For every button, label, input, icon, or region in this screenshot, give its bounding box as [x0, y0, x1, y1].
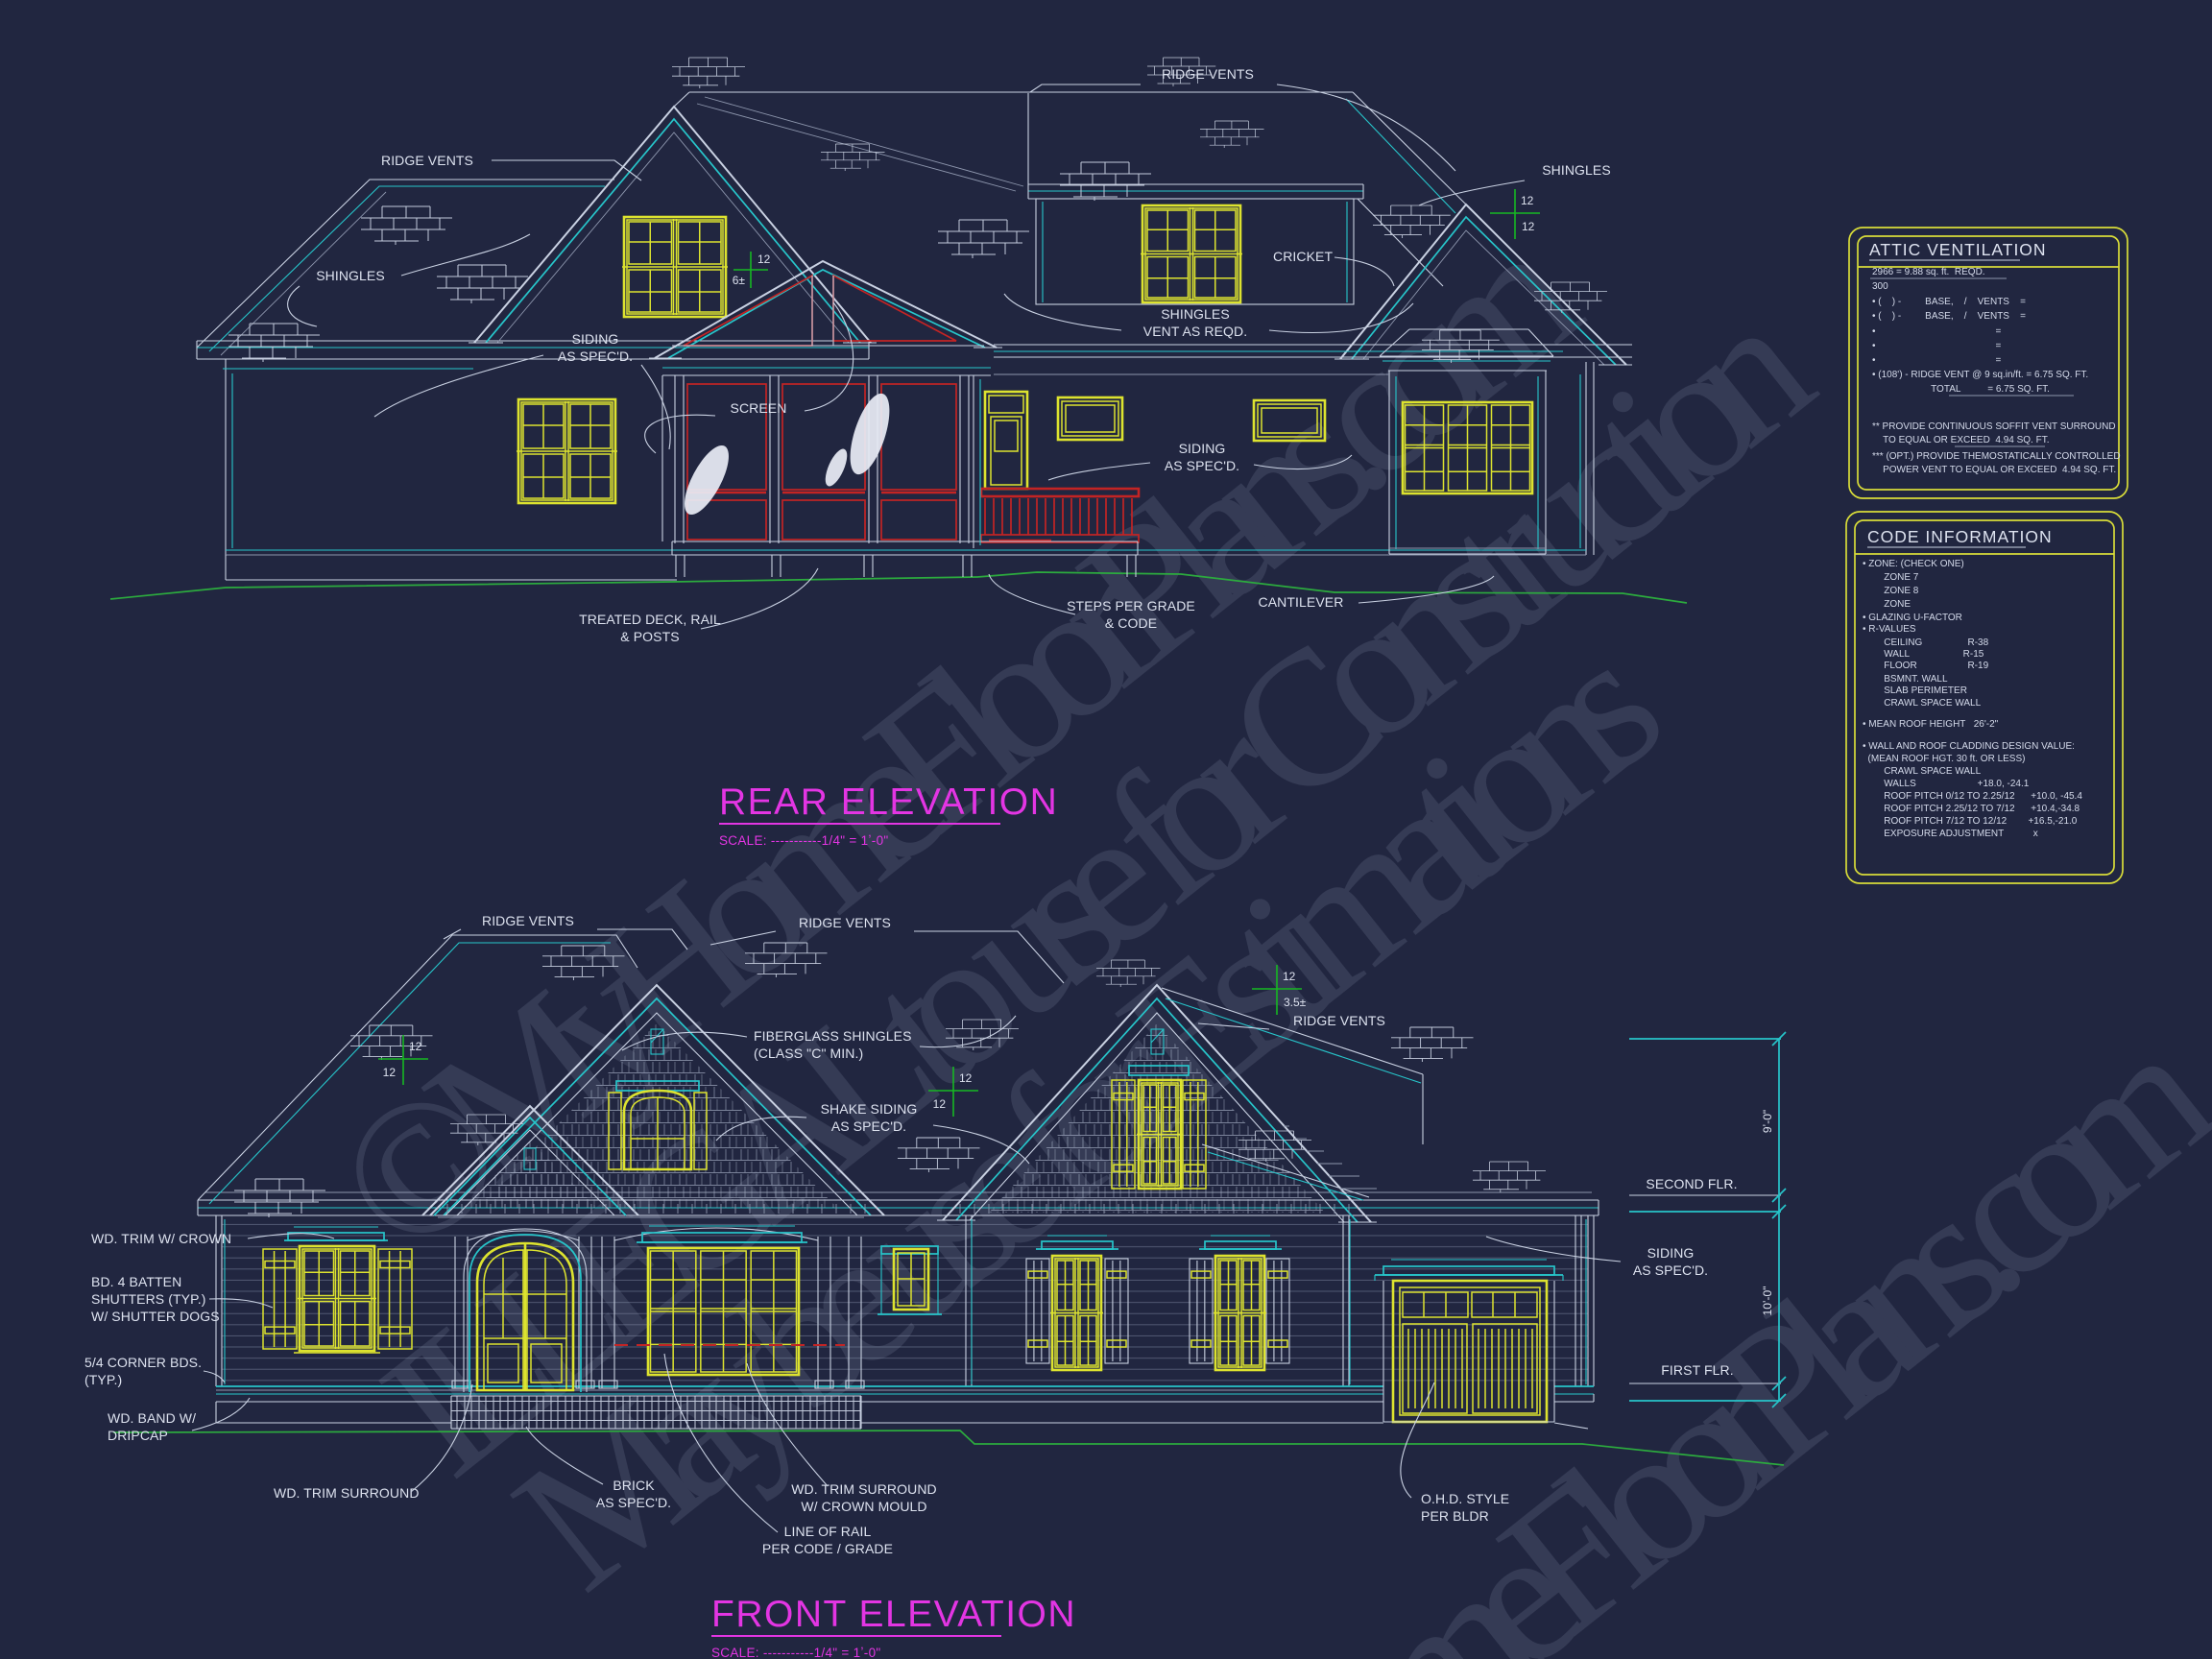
svg-text:AS SPEC'D.: AS SPEC'D. [1633, 1262, 1708, 1278]
svg-text:FIBERGLASS SHINGLES: FIBERGLASS SHINGLES [754, 1028, 912, 1044]
svg-text:12: 12 [1283, 970, 1296, 983]
svg-text:AS SPEC'D.: AS SPEC'D. [1165, 458, 1239, 473]
svg-text:RIDGE VENTS: RIDGE VENTS [482, 913, 574, 928]
svg-text:12: 12 [933, 1097, 947, 1111]
svg-text:*** (OPT.) PROVIDE THEMOSTATIC: *** (OPT.) PROVIDE THEMOSTATICALLY CONTR… [1872, 451, 2121, 462]
svg-text:CRICKET: CRICKET [1273, 249, 1333, 264]
svg-text:(CLASS "C" MIN.): (CLASS "C" MIN.) [754, 1046, 863, 1061]
svg-text:AS SPEC'D.: AS SPEC'D. [558, 349, 633, 364]
svg-text:ROOF PITCH 7/12 TO 12/12: ROOF PITCH 7/12 TO 12/12 +16.5,-21.0 [1863, 816, 2078, 827]
svg-text:9ʼ-0": 9ʼ-0" [1761, 1110, 1774, 1133]
svg-text:SHUTTERS (TYP.): SHUTTERS (TYP.) [91, 1291, 205, 1307]
svg-text:SLAB PERIMETER: SLAB PERIMETER [1863, 685, 1967, 696]
svg-text:WALL R-15: WALL R-15 [1863, 649, 1984, 660]
svg-text:•: • = [1872, 326, 2002, 337]
svg-text:CODE INFORMATION: CODE INFORMATION [1867, 527, 2053, 546]
svg-text:RIDGE VENTS: RIDGE VENTS [381, 153, 473, 168]
svg-text:POWER VENT TO EQUAL OR EXCEED: POWER VENT TO EQUAL OR EXCEED 4.94 SQ. F… [1872, 465, 2116, 475]
svg-text:SHINGLES: SHINGLES [1161, 306, 1230, 322]
svg-text:12: 12 [757, 252, 771, 266]
svg-text:•: • = [1872, 341, 2002, 351]
svg-text:300: 300 [1872, 281, 1888, 292]
svg-text:BRICK: BRICK [613, 1478, 655, 1493]
svg-text:BD. 4 BATTEN: BD. 4 BATTEN [91, 1274, 181, 1289]
svg-text:SCREEN: SCREEN [731, 400, 787, 416]
svg-text:12: 12 [409, 1040, 422, 1053]
svg-text:& POSTS: & POSTS [620, 629, 679, 644]
svg-text:W/ SHUTTER DOGS: W/ SHUTTER DOGS [91, 1309, 220, 1324]
svg-text:ROOF PITCH 0/12 TO 2.25/12: ROOF PITCH 0/12 TO 2.25/12 +10.0, -45.4 [1863, 791, 2082, 802]
svg-text:ATTIC VENTILATION: ATTIC VENTILATION [1869, 240, 2047, 259]
svg-text:(MEAN ROOF HGT. 30 ft. OR LESS: (MEAN ROOF HGT. 30 ft. OR LESS) [1863, 754, 2025, 764]
svg-text:5/4 CORNER BDS.: 5/4 CORNER BDS. [84, 1355, 202, 1370]
svg-text:CANTILEVER: CANTILEVER [1259, 594, 1344, 610]
svg-text:ZONE 8: ZONE 8 [1863, 586, 1919, 596]
svg-text:BSMNT. WALL: BSMNT. WALL [1863, 674, 1948, 685]
svg-text:TREATED DECK, RAIL: TREATED DECK, RAIL [579, 612, 721, 627]
svg-text:STEPS PER GRADE: STEPS PER GRADE [1067, 598, 1195, 613]
svg-text:** PROVIDE CONTINUOUS SOFFIT V: ** PROVIDE CONTINUOUS SOFFIT VENT SURROU… [1872, 421, 2116, 432]
svg-text:12: 12 [959, 1071, 973, 1085]
svg-text:WD. TRIM SURROUND: WD. TRIM SURROUND [791, 1481, 937, 1497]
svg-text:FLOOR R-19: FLOOR R-19 [1863, 661, 1989, 671]
svg-text:ZONE: ZONE [1863, 599, 1911, 610]
svg-text:RIDGE VENTS: RIDGE VENTS [1162, 66, 1254, 82]
svg-text:EXPOSURE ADJUSTMENT: EXPOSURE ADJUSTMENT x [1863, 829, 2038, 839]
svg-text:• MEAN ROOF HEIGHT 26'-2": • MEAN ROOF HEIGHT 26'-2" [1863, 719, 1999, 730]
svg-text:WALLS +1: WALLS +18.0, -24.1 [1863, 779, 2030, 789]
svg-text:SCALE: -----------1/4" = 1ʼ-0": SCALE: -----------1/4" = 1ʼ-0" [719, 833, 888, 848]
svg-text:SIDING: SIDING [1647, 1245, 1695, 1261]
svg-text:PER CODE / GRADE: PER CODE / GRADE [762, 1541, 893, 1556]
svg-text:PER BLDR: PER BLDR [1421, 1508, 1489, 1524]
svg-text:SHINGLES: SHINGLES [316, 268, 385, 283]
svg-text:FRONT ELEVATION: FRONT ELEVATION [711, 1594, 1076, 1635]
svg-text:AS SPEC'D.: AS SPEC'D. [596, 1495, 671, 1510]
svg-text:REAR ELEVATION: REAR ELEVATION [719, 781, 1058, 823]
svg-text:• ( ) - BASE, /: • ( ) - BASE, / VENTS = [1872, 297, 2026, 307]
svg-text:O.H.D. STYLE: O.H.D. STYLE [1421, 1491, 1509, 1506]
svg-text:6±: 6± [733, 274, 746, 287]
svg-text:W/ CROWN MOULD: W/ CROWN MOULD [801, 1499, 926, 1514]
svg-text:2966 = 9.88 sq. ft. REQD.: 2966 = 9.88 sq. ft. REQD. [1872, 267, 1985, 277]
svg-text:• GLAZING U-FACTOR: • GLAZING U-FACTOR [1863, 613, 1962, 623]
svg-text:12: 12 [1522, 220, 1535, 233]
svg-text:& CODE: & CODE [1105, 615, 1157, 631]
svg-text:CRAWL SPACE WALL: CRAWL SPACE WALL [1863, 766, 1982, 777]
svg-text:SIDING: SIDING [1179, 441, 1226, 456]
svg-text:WD. TRIM SURROUND: WD. TRIM SURROUND [274, 1485, 420, 1501]
svg-text:12: 12 [383, 1066, 397, 1079]
svg-text:CRAWL SPACE WALL: CRAWL SPACE WALL [1863, 698, 1982, 709]
svg-text:3.5±: 3.5± [1284, 996, 1307, 1009]
svg-text:• R-VALUES: • R-VALUES [1863, 624, 1916, 635]
svg-text:SCALE: -----------1/4" = 1ʼ-0": SCALE: -----------1/4" = 1ʼ-0" [711, 1646, 880, 1659]
svg-text:(TYP.): (TYP.) [84, 1372, 122, 1387]
svg-text:SECOND FLR.: SECOND FLR. [1646, 1176, 1737, 1191]
svg-text:• (108') - RIDGE VENT @ 9 sq.i: • (108') - RIDGE VENT @ 9 sq.in/ft. = 6.… [1872, 370, 2088, 380]
svg-text:•: • = [1872, 355, 2002, 366]
svg-text:FIRST FLR.: FIRST FLR. [1661, 1362, 1733, 1378]
svg-text:WD. TRIM W/ CROWN: WD. TRIM W/ CROWN [91, 1231, 231, 1246]
svg-text:• ( ) - BASE, /: • ( ) - BASE, / VENTS = [1872, 311, 2026, 322]
svg-text:CEILING R-38: CEILING R-38 [1863, 637, 1989, 648]
svg-text:• ZONE: (CHECK ONE): • ZONE: (CHECK ONE) [1863, 559, 1964, 569]
svg-text:TO EQUAL OR EXCEED 4.94 SQ. F: TO EQUAL OR EXCEED 4.94 SQ. FT. [1872, 435, 2050, 445]
svg-text:LINE OF RAIL: LINE OF RAIL [784, 1524, 872, 1539]
svg-text:10ʼ-0": 10ʼ-0" [1761, 1286, 1774, 1316]
svg-text:WD. BAND W/: WD. BAND W/ [108, 1410, 196, 1426]
svg-text:• WALL AND ROOF CLADDING DESIG: • WALL AND ROOF CLADDING DESIGN VALUE: [1863, 741, 2075, 752]
svg-text:AS SPEC'D.: AS SPEC'D. [831, 1118, 906, 1134]
svg-text:SHAKE SIDING: SHAKE SIDING [821, 1101, 918, 1117]
svg-text:TOTAL = 6.75 SQ. FT.: TOTAL = 6.75 SQ. FT. [1872, 384, 2050, 395]
svg-text:ROOF PITCH 2.25/12 TO 7/12: ROOF PITCH 2.25/12 TO 7/12 +10.4,-34.8 [1863, 804, 2080, 814]
svg-text:SIDING: SIDING [572, 331, 619, 347]
svg-text:12: 12 [1521, 194, 1534, 207]
svg-text:DRIPCAP: DRIPCAP [108, 1428, 168, 1443]
svg-text:SHINGLES: SHINGLES [1542, 162, 1611, 178]
svg-text:RIDGE VENTS: RIDGE VENTS [1293, 1013, 1385, 1028]
svg-text:ZONE 7: ZONE 7 [1863, 572, 1919, 583]
svg-text:VENT AS REQD.: VENT AS REQD. [1143, 324, 1247, 339]
svg-text:RIDGE VENTS: RIDGE VENTS [799, 915, 891, 930]
